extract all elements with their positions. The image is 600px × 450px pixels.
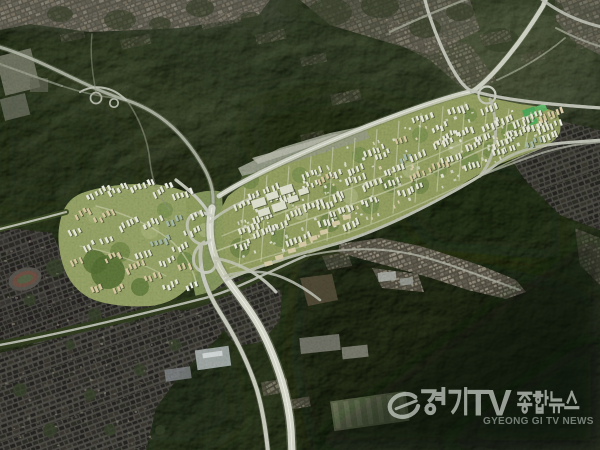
svg-text:GYEONG GI TV NEWS: GYEONG GI TV NEWS bbox=[483, 416, 594, 427]
